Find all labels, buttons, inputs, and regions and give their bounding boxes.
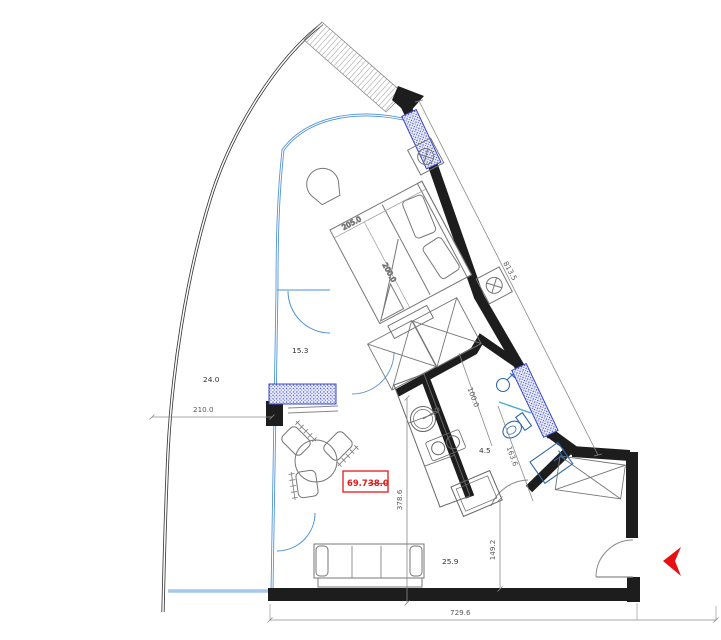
sofa-armrest xyxy=(316,546,328,576)
canopy-band xyxy=(304,22,404,112)
entry-arrow-icon xyxy=(663,547,681,576)
area-previous: 38.0 xyxy=(368,478,389,488)
dim-living-depth: 378.6 xyxy=(395,489,404,510)
bedroom-door-arc xyxy=(352,352,394,394)
balcony-door-arc-top xyxy=(288,291,330,333)
dim-balcony-width: 210.0 xyxy=(193,405,214,414)
entry-wardrobe-cross xyxy=(555,456,625,499)
dim-overall-width: 729.6 xyxy=(450,608,471,617)
dim-entry-depth: 149.2 xyxy=(488,540,497,561)
bedroom-area-label: 15.3 xyxy=(292,346,309,355)
dim-bath-width: 100.0 xyxy=(466,386,482,409)
media-wall-stub xyxy=(266,401,283,426)
entry-wall-right xyxy=(626,452,638,538)
glazing-wall-left xyxy=(168,289,277,591)
walls xyxy=(266,98,640,602)
cooktop xyxy=(425,429,466,461)
floor-plan-canvas: 205.0 200.0 xyxy=(0,0,721,640)
armchair xyxy=(301,163,345,208)
floor-plan-drawing: 205.0 200.0 xyxy=(0,0,721,640)
burner-icon xyxy=(430,440,447,457)
bedroom-partition-wall xyxy=(397,339,520,393)
window-insulation-living xyxy=(269,384,336,404)
bathroom-area-label: 4.5 xyxy=(479,446,491,455)
sofa xyxy=(314,544,424,578)
balcony-area-label: 24.0 xyxy=(203,375,220,384)
dim-bath-length: 163.6 xyxy=(505,445,521,468)
living-area-label: 25.9 xyxy=(442,557,459,566)
kitchen-counter xyxy=(394,374,470,507)
bedroom-furniture: 205.0 200.0 xyxy=(301,115,512,354)
area-box: 69.7 38.0 xyxy=(343,471,389,492)
balcony-door-arc-bottom2 xyxy=(277,513,315,551)
window-insulation-bedroom xyxy=(402,110,441,169)
media-shelf-line2 xyxy=(288,411,338,413)
sofa-base xyxy=(318,578,422,587)
counter-divider xyxy=(425,455,455,466)
facade-glazing xyxy=(168,115,403,591)
chair-back-hatch xyxy=(336,444,360,468)
media-shelf-line1 xyxy=(288,406,338,408)
chair-back-hatch xyxy=(288,472,298,501)
sofa-armrest xyxy=(410,546,422,576)
bath-sink xyxy=(497,379,510,392)
shower-screen xyxy=(499,402,531,413)
dining-chair xyxy=(295,470,318,499)
area-total: 69.7 xyxy=(347,478,368,488)
entry-door-arc xyxy=(596,540,633,577)
glazing-wall-left-core xyxy=(168,289,277,591)
chair-back-hatch xyxy=(294,419,318,443)
window-insulation-bathroom xyxy=(512,364,558,438)
dim-facade-length: 813.5 xyxy=(501,260,519,282)
bottom-wall xyxy=(268,588,640,601)
